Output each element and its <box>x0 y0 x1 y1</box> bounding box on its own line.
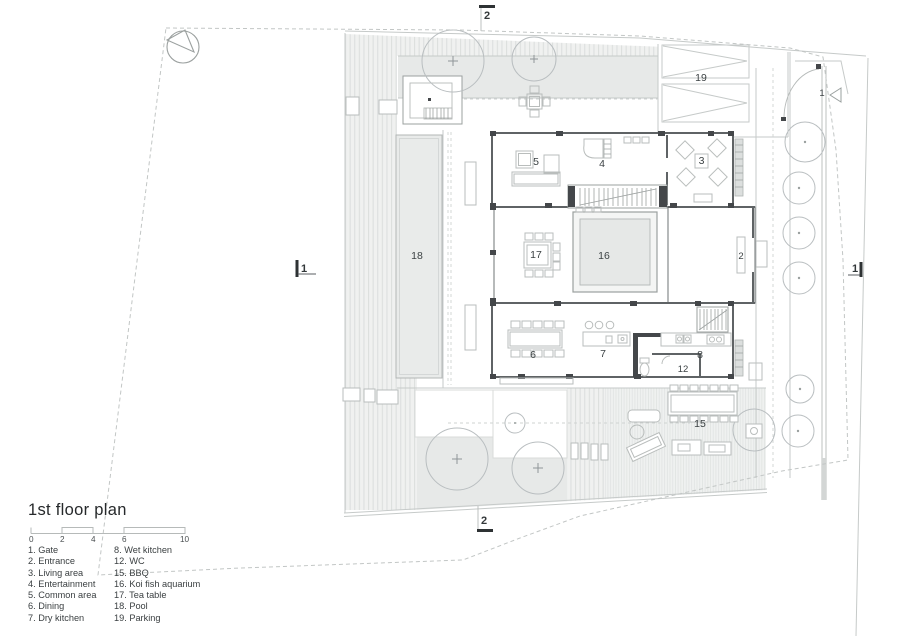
gate-direction-icon <box>830 88 841 102</box>
legend-item: 18. Pool <box>114 601 200 612</box>
section-marker-top: 2 <box>479 5 495 31</box>
label-koi-aquarium: 16 <box>598 250 610 262</box>
main-staircase <box>568 185 667 208</box>
label-tea-table: 17 <box>530 249 542 261</box>
legend-item: 2. Entrance <box>28 556 96 567</box>
label-common-area: 5 <box>533 156 539 168</box>
label-entrance: 2 <box>738 251 743 262</box>
svg-text:10: 10 <box>180 535 190 543</box>
scale-bar: 0 2 4 6 10 <box>28 524 228 543</box>
courtyard <box>490 205 657 303</box>
label-parking: 19 <box>695 72 707 84</box>
svg-text:0: 0 <box>29 535 34 543</box>
label-entertainment: 4 <box>599 158 605 170</box>
svg-text:4: 4 <box>91 535 96 543</box>
legend-item: 19. Parking <box>114 613 200 624</box>
legend-item: 6. Dining <box>28 601 96 612</box>
legend-item: 3. Living area <box>28 568 96 579</box>
legend-item: 5. Common area <box>28 590 96 601</box>
label-wet-kitchen: 8 <box>697 349 703 361</box>
legend-item: 4. Entertainment <box>28 579 96 590</box>
legend: 1st floor plan 0 2 4 6 10 1. Gate 2. Ent… <box>28 501 278 635</box>
secondary-staircase <box>697 307 728 332</box>
legend-item: 16. Koi fish aquarium <box>114 579 200 590</box>
legend-item: 7. Dry kitchen <box>28 613 96 624</box>
legend-item: 8. Wet kitchen <box>114 545 200 556</box>
label-dry-kitchen: 7 <box>600 348 606 360</box>
legend-item: 12. WC <box>114 556 200 567</box>
section-marker-right: 1 <box>848 262 863 277</box>
svg-text:1: 1 <box>301 263 307 275</box>
page-title: 1st floor plan <box>28 501 278 520</box>
svg-text:2: 2 <box>481 515 487 527</box>
svg-text:1: 1 <box>852 263 858 275</box>
section-marker-left: 1 <box>296 260 317 277</box>
north-arrow-icon <box>167 30 199 63</box>
svg-text:2: 2 <box>60 535 65 543</box>
legend-item: 15. BBQ <box>114 568 200 579</box>
legend-column-1: 1. Gate 2. Entrance 3. Living area 4. En… <box>28 545 96 624</box>
koi-aquarium <box>573 207 657 292</box>
floor-plan-page: 18 16 17 5 4 3 6 7 8 12 15 19 2 1 2 2 1 <box>0 0 900 636</box>
bottom-wing <box>490 301 743 384</box>
svg-text:6: 6 <box>122 535 127 543</box>
label-living-area: 3 <box>699 155 705 167</box>
legend-item: 1. Gate <box>28 545 96 556</box>
label-gate: 1 <box>819 88 824 99</box>
legend-column-2: 8. Wet kitchen 12. WC 15. BBQ 16. Koi fi… <box>114 545 200 624</box>
label-pool: 18 <box>411 250 423 262</box>
svg-text:2: 2 <box>484 10 490 22</box>
legend-item: 17. Tea table <box>114 590 200 601</box>
label-dining: 6 <box>530 349 536 361</box>
label-bbq: 15 <box>694 418 706 430</box>
label-wc: 12 <box>678 364 689 375</box>
garden-structure <box>403 76 462 124</box>
top-wing <box>490 131 743 208</box>
